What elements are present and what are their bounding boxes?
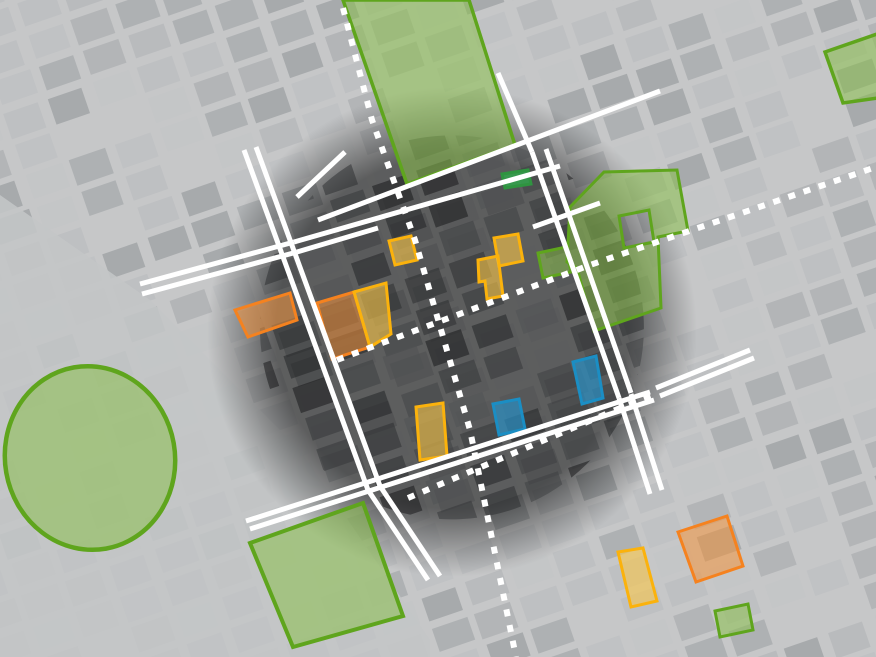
city-map-canvas [0,0,876,657]
blue-central [493,399,525,435]
aerial-map-figure [0,0,876,657]
yellow-south [416,403,447,460]
green-small-southeast [715,604,753,637]
